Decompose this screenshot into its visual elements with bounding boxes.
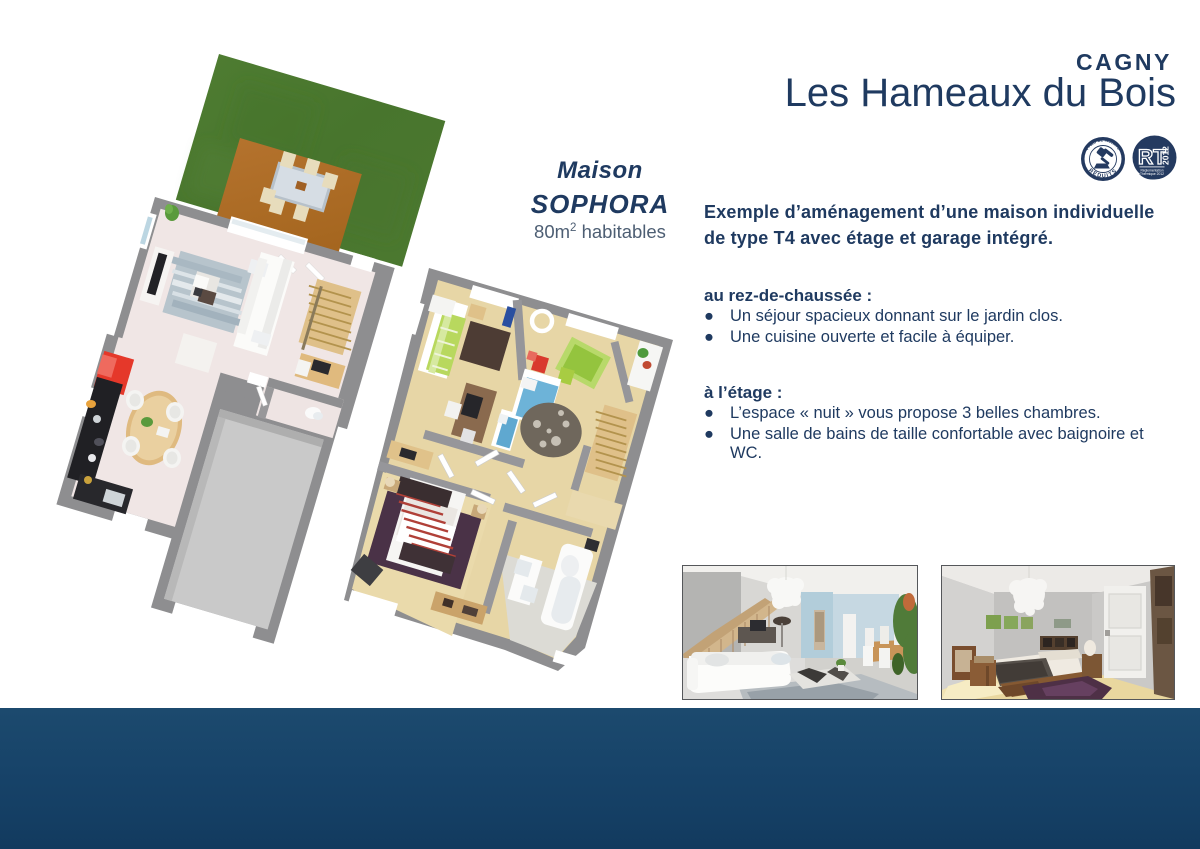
svg-text:Thermique 2012: Thermique 2012 (1140, 172, 1164, 176)
svg-text:2012: 2012 (1161, 146, 1171, 165)
